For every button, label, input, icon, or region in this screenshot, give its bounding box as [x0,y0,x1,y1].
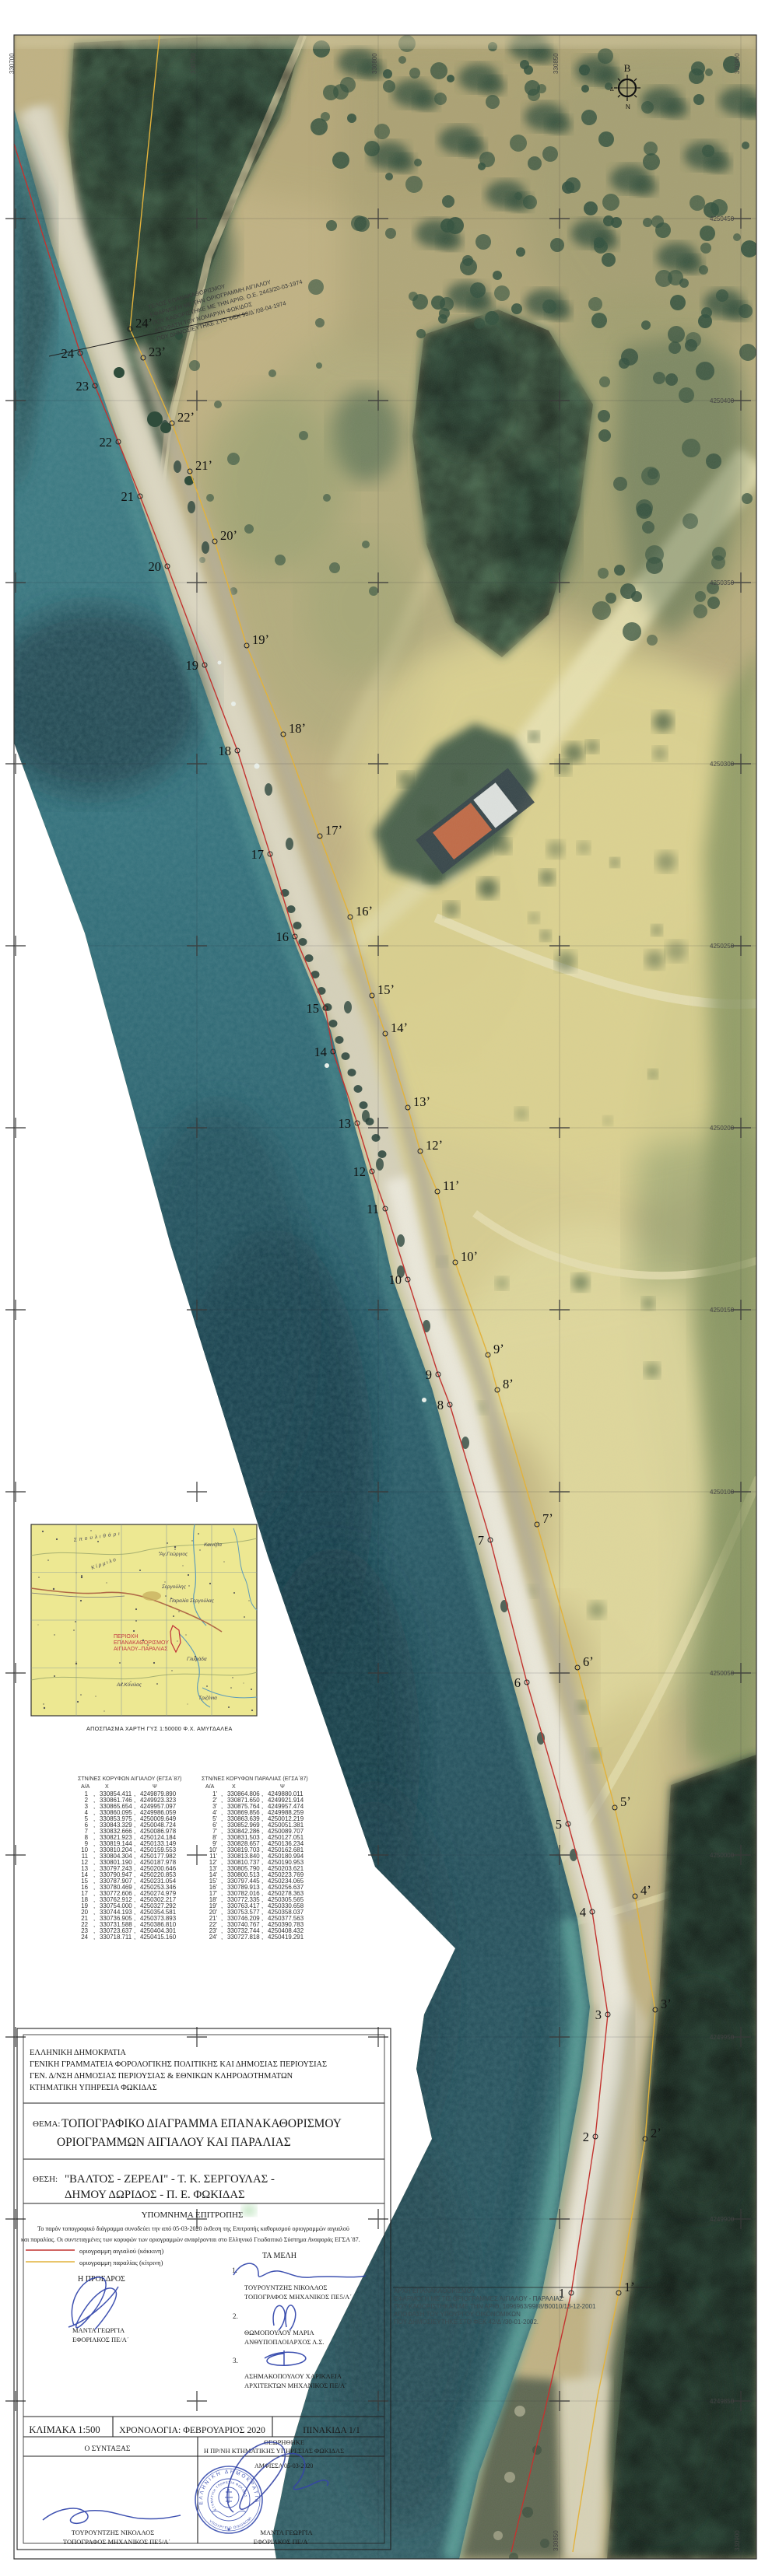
svg-text:οριογραμμη παραλίας (κίτρινη): οριογραμμη παραλίας (κίτρινη) [79,2259,163,2266]
svg-text:"ΒΑΛΤΟΣ - ΖΕΡΕΛΙ" - Τ. Κ. ΣΕΡ: "ΒΑΛΤΟΣ - ΖΕΡΕΛΙ" - Τ. Κ. ΣΕΡΓΟΥΛΑΣ - [65,2173,275,2186]
svg-text:Ψ: Ψ [153,1784,157,1790]
svg-text:Ν: Ν [626,103,630,110]
svg-text:19ʼ: 19ʼ [252,632,269,647]
svg-text:και παραλίας. Οι συντεταγμένες: και παραλίας. Οι συντεταγμένες των κορυφ… [21,2236,360,2243]
svg-text:330750: 330750 [190,53,197,74]
svg-text:Αγ.Γεώργιος: Αγ.Γεώργιος [159,1551,188,1557]
svg-text:4249850: 4249850 [710,2398,735,2405]
svg-text:ΕΦΟΡΙΑΚΟΣ ΠΕ/Α΄: ΕΦΟΡΙΑΚΟΣ ΠΕ/Α΄ [72,2336,129,2343]
svg-text:Το παρόν τοπογραφικό διάγραμμα: Το παρόν τοπογραφικό διάγραμμα συνοδεύει… [37,2225,349,2232]
svg-text:6: 6 [514,1675,521,1690]
svg-text:ΣΤΝ/ΝΕΣ ΚΟΡΥΦΩΝ ΑΙΓΙΑΛΟΥ (ΕΓΣΑ: ΣΤΝ/ΝΕΣ ΚΟΡΥΦΩΝ ΑΙΓΙΑΛΟΥ (ΕΓΣΑ΄87) [78,1776,182,1782]
svg-text:8ʼ: 8ʼ [503,1377,514,1391]
svg-text:Β: Β [624,62,631,74]
svg-text:11ʼ: 11ʼ [443,1178,459,1193]
svg-text:οριογραμμη αιγιαλού (κόκκινη): οριογραμμη αιγιαλού (κόκκινη) [79,2247,163,2255]
svg-text:24: 24 [81,1934,88,1941]
svg-text:ΠΕΡΙΟΧΗ: ΠΕΡΙΟΧΗ [114,1634,139,1640]
svg-text:4250100: 4250100 [710,1489,735,1496]
svg-text:ΓΕΝ. Δ/ΝΣΗ ΔΗΜΟΣΙΑΣ ΠΕΡΙΟΥΣΙΑΣ: ΓΕΝ. Δ/ΝΣΗ ΔΗΜΟΣΙΑΣ ΠΕΡΙΟΥΣΙΑΣ & ΕΘΝΙΚΩΝ… [30,2072,293,2081]
svg-text:ΑΡΧΗ ΕΠΑΝΑΚΑΘΟΡΙΣΜΟΥ: ΑΡΧΗ ΕΠΑΝΑΚΑΘΟΡΙΣΜΟΥ [394,2287,476,2294]
svg-text:17: 17 [251,847,265,862]
svg-text:Ο ΣΥΝΤΑΞΑΣ: Ο ΣΥΝΤΑΞΑΣ [85,2445,131,2453]
svg-text:6ʼ: 6ʼ [583,1654,594,1669]
svg-text:12ʼ: 12ʼ [426,1138,443,1153]
svg-text:ΠΟΥ ΔΗΜΟΣΙΕΥΤΗΚΕ ΣΤΟ ΦΕΚ 42/Δ΄: ΠΟΥ ΔΗΜΟΣΙΕΥΤΗΚΕ ΣΤΟ ΦΕΚ 42/Δ΄/30-01-200… [394,2319,539,2326]
svg-text:13ʼ: 13ʼ [413,1094,430,1109]
svg-text:ΑΝΘΥΠΟΠΛΟΙΑΡΧΟΣ Λ.Σ.: ΑΝΘΥΠΟΠΛΟΙΑΡΧΟΣ Λ.Σ. [244,2338,324,2346]
svg-text:ΤΟΠΟΓΡΑΦΙΚΟ ΔΙΑΓΡΑΜΜΑ ΕΠΑΝΑΚΑΘ: ΤΟΠΟΓΡΑΦΙΚΟ ΔΙΑΓΡΑΜΜΑ ΕΠΑΝΑΚΑΘΟΡΙΣΜΟΥ [61,2117,342,2130]
svg-text:4249900: 4249900 [710,2216,735,2223]
svg-text:330727.818: 330727.818 [227,1934,260,1941]
svg-text:5: 5 [556,1817,562,1832]
svg-text:4250200: 4250200 [710,1125,735,1132]
svg-text:ΑΠΟΦΑΣΗ ΤΟΥ ΥΠΟΥΡΓΟΥ ΟΙΚΟΝΟΜΙΚ: ΑΠΟΦΑΣΗ ΤΟΥ ΥΠΟΥΡΓΟΥ ΟΙΚΟΝΟΜΙΚΩΝ [394,2311,521,2318]
svg-text:9ʼ: 9ʼ [493,1342,504,1356]
svg-text:Χ: Χ [232,1784,236,1790]
svg-text:ΜΑΝΤΑ ΓΕΩΡΓΙΑ: ΜΑΝΤΑ ΓΕΩΡΓΙΑ [260,2529,313,2536]
svg-text:ΧΡΟΝΟΛΟΓΙΑ: ΦΕΒΡΟΥΑΡΙΟΣ 2020: ΧΡΟΝΟΛΟΓΙΑ: ΦΕΒΡΟΥΑΡΙΟΣ 2020 [119,2424,265,2435]
svg-text:Α/Α: Α/Α [205,1784,215,1790]
svg-text:2: 2 [583,2130,589,2144]
svg-text:ΤΟΥΡΟΥΝΤΖΗΣ ΝΙΚΟΛΑΟΣ: ΤΟΥΡΟΥΝΤΖΗΣ ΝΙΚΟΛΑΟΣ [244,2284,328,2291]
svg-text:7ʼ: 7ʼ [542,1511,553,1526]
svg-text:24ʼ: 24ʼ [135,316,153,331]
svg-text:4ʼ: 4ʼ [640,1883,651,1898]
svg-text:4250300: 4250300 [710,761,735,768]
svg-text:ΔΗΜΟΥ ΔΩΡΙΔΟΣ - Π. Ε. ΦΩΚΙΔΑΣ: ΔΗΜΟΥ ΔΩΡΙΔΟΣ - Π. Ε. ΦΩΚΙΔΑΣ [65,2189,245,2201]
svg-text:17ʼ: 17ʼ [325,823,342,838]
svg-text:ΤΟΠΟΓΡΑΦΟΣ ΜΗΧΑΝΙΚΟΣ ΠΕ5/Α΄: ΤΟΠΟΓΡΑΦΟΣ ΜΗΧΑΝΙΚΟΣ ΠΕ5/Α΄ [244,2293,352,2301]
svg-text:330850: 330850 [553,53,560,74]
svg-text:4250415.160: 4250415.160 [140,1934,177,1941]
svg-text:22ʼ: 22ʼ [177,410,195,425]
svg-text:ΚΤΗΜΑΤΙΚΗ ΥΠΗΡΕΣΙΑ ΦΩΚΙΔΑΣ: ΚΤΗΜΑΤΙΚΗ ΥΠΗΡΕΣΙΑ ΦΩΚΙΔΑΣ [30,2084,157,2092]
svg-text:330900: 330900 [734,2530,741,2551]
svg-text:3ʼ: 3ʼ [661,1997,672,2011]
svg-text:18ʼ: 18ʼ [289,721,306,736]
svg-text:1ʼ: 1ʼ [624,2280,635,2294]
svg-text:13: 13 [339,1116,352,1131]
svg-text:ΚΛΙΜΑΚΑ 1:500: ΚΛΙΜΑΚΑ 1:500 [29,2424,100,2435]
svg-text:9: 9 [426,1367,432,1382]
svg-text:Χ: Χ [105,1784,109,1790]
svg-text:20: 20 [149,559,162,574]
svg-text:7: 7 [478,1533,484,1548]
svg-text:2ʼ: 2ʼ [651,2126,661,2140]
svg-text:ΓΕΝΙΚΗ ΓΡΑΜΜΑΤΕΙΑ ΦΟΡΟΛΟΓΙΚΗΣ: ΓΕΝΙΚΗ ΓΡΑΜΜΑΤΕΙΑ ΦΟΡΟΛΟΓΙΚΗΣ ΠΟΛΙΤΙΚΗΣ … [30,2060,327,2069]
svg-text:10ʼ: 10ʼ [461,1249,478,1264]
svg-text:ΠΟΥ ΚΑΘΟΡΙΣΤΗΚΑΝ ΜΕ ΤΗΝ ΑΡΙΘ.: ΠΟΥ ΚΑΘΟΡΙΣΤΗΚΑΝ ΜΕ ΤΗΝ ΑΡΙΘ. 1096963/99… [394,2303,596,2310]
svg-text:Ψ: Ψ [280,1784,285,1790]
svg-text:Γλυφάδα: Γλυφάδα [187,1656,207,1662]
svg-text:8: 8 [437,1398,444,1412]
svg-text:4250050: 4250050 [710,1670,735,1677]
svg-text:,: , [134,1934,135,1941]
svg-text:330718.711: 330718.711 [100,1934,132,1941]
svg-text:21: 21 [121,489,135,504]
svg-text:ΑΠΟΣΠΑΣΜΑ ΧΑΡΤΗ ΓΥΣ 1:50000: ΑΠΟΣΠΑΣΜΑ ΧΑΡΤΗ ΓΥΣ 1:50000 Φ.Χ. ΑΜΥΓΔΑΛ… [86,1725,233,1732]
svg-text:4250400: 4250400 [710,397,735,404]
svg-text:16: 16 [276,929,289,944]
svg-text:Η ΠΡΟΕΔΡΟΣ: Η ΠΡΟΕΔΡΟΣ [78,2275,125,2284]
svg-text:3: 3 [595,2007,602,2022]
svg-text:Δ: Δ [610,87,614,93]
svg-text:ΑΙΓΙΑΛΟΥ–ΠΑΡΑΛΙΑΣ: ΑΙΓΙΑΛΟΥ–ΠΑΡΑΛΙΑΣ [114,1647,168,1652]
svg-text:20ʼ: 20ʼ [220,528,237,543]
svg-text:Παραλία Σεργούλας: Παραλία Σεργούλας [170,1598,215,1604]
svg-text:18: 18 [219,744,232,758]
svg-text:23ʼ: 23ʼ [149,345,166,359]
svg-text:4: 4 [580,1905,586,1920]
svg-text:ΘΕΜΑ:: ΘΕΜΑ: [33,2119,60,2129]
svg-text:15ʼ: 15ʼ [377,982,395,997]
svg-text:ΕΦΟΡΙΑΚΟΣ ΠΕ/Α΄: ΕΦΟΡΙΑΚΟΣ ΠΕ/Α΄ [254,2538,311,2546]
svg-text:4249950: 4249950 [710,2034,735,2041]
svg-text:16ʼ: 16ʼ [356,904,373,919]
svg-text:10: 10 [389,1272,402,1287]
svg-text:19: 19 [186,658,199,673]
svg-text:14: 14 [314,1045,328,1059]
svg-text:4250350: 4250350 [710,579,735,586]
svg-text:4250450: 4250450 [710,215,735,222]
svg-text:Καινέβα: Καινέβα [204,1542,222,1548]
svg-text:4250150: 4250150 [710,1307,735,1314]
svg-text:330800: 330800 [371,53,378,74]
svg-text:14ʼ: 14ʼ [391,1020,408,1035]
svg-text:,: , [261,1934,263,1941]
svg-text:ΕΛΛΗΝΙΚΗ ΔΗΜΟΚΡΑΤΙΑ: ΕΛΛΗΝΙΚΗ ΔΗΜΟΚΡΑΤΙΑ [30,2049,126,2057]
svg-text:ΣΤΝ/ΝΕΣ ΚΟΡΥΦΩΝ ΠΑΡΑΛΙΑΣ (ΕΓΣΑ: ΣΤΝ/ΝΕΣ ΚΟΡΥΦΩΝ ΠΑΡΑΛΙΑΣ (ΕΓΣΑ΄87) [202,1776,308,1782]
svg-text:Η ΠΡ/ΝΗ ΚΤΗΜΑΤΙΚΗΣ ΥΠΗΡΕΣΙΑΣ Φ: Η ΠΡ/ΝΗ ΚΤΗΜΑΤΙΚΗΣ ΥΠΗΡΕΣΙΑΣ ΦΩΚΙΔΑΣ [204,2447,344,2455]
svg-text:15: 15 [307,1001,320,1016]
svg-text:5ʼ: 5ʼ [620,1794,631,1809]
svg-text:11: 11 [367,1202,379,1216]
svg-text:3.: 3. [233,2357,238,2364]
svg-text:330900: 330900 [734,53,741,74]
svg-text:ΑΡΧΙΤΕΚΤΩΝ ΜΗΧΑΝΙΚΟΣ ΠΕ/Α΄: ΑΡΧΙΤΕΚΤΩΝ ΜΗΧΑΝΙΚΟΣ ΠΕ/Α΄ [244,2382,347,2389]
svg-text:2.: 2. [233,2312,238,2320]
svg-text:Τριζόνια: Τριζόνια [198,1695,217,1701]
svg-text:,: , [221,1934,223,1941]
svg-text:ΘΕΣΗ:: ΘΕΣΗ: [33,2175,58,2184]
svg-text:,: , [93,1934,95,1941]
svg-text:ΤΟΠΟΓΡΑΦΟΣ ΜΗΧΑΝΙΚΟΣ ΠΕ5/Α΄: ΤΟΠΟΓΡΑΦΟΣ ΜΗΧΑΝΙΚΟΣ ΠΕ5/Α΄ [63,2538,170,2546]
svg-text:ΑΣΗΜΑΚΟΠΟΥΛΟΥ ΧΑΡΙΚΛΕΙΑ: ΑΣΗΜΑΚΟΠΟΥΛΟΥ ΧΑΡΙΚΛΕΙΑ [244,2372,342,2380]
svg-text:Α/Α: Α/Α [81,1784,90,1790]
svg-text:23: 23 [76,379,89,394]
svg-text:4250000: 4250000 [710,1852,735,1859]
svg-text:21ʼ: 21ʼ [195,458,212,473]
svg-text:330850: 330850 [553,2530,560,2551]
svg-text:12: 12 [353,1164,367,1179]
svg-text:Σεργούλης: Σεργούλης [161,1584,187,1590]
svg-text:ΤΟΥΡΟΥΝΤΖΗΣ ΝΙΚΟΛΑΟΣ: ΤΟΥΡΟΥΝΤΖΗΣ ΝΙΚΟΛΑΟΣ [72,2529,155,2536]
svg-text:330700: 330700 [9,53,16,74]
svg-text:ΤΑ ΜΕΛΗ: ΤΑ ΜΕΛΗ [262,2252,297,2260]
svg-text:ΕΦΑΡΜΟΓΗ ΜΕ ΤΙΣ ΟΡΙΟΓΡΑΜΜΕΣ ΑΙ: ΕΦΑΡΜΟΓΗ ΜΕ ΤΙΣ ΟΡΙΟΓΡΑΜΜΕΣ ΑΙΓΙΑΛΟΥ - Π… [394,2295,563,2302]
svg-text:ΥΠΟΜΝΗΜΑ ΕΠΙΤΡΟΠΗΣ: ΥΠΟΜΝΗΜΑ ΕΠΙΤΡΟΠΗΣ [142,2210,244,2220]
svg-text:ΜΑΝΤΑ ΓΕΩΡΓΙΑ: ΜΑΝΤΑ ΓΕΩΡΓΙΑ [72,2326,125,2334]
svg-text:Ακ.Κόνιλας: Ακ.Κόνιλας [116,1682,142,1688]
svg-text:22: 22 [100,435,113,450]
svg-text:24': 24' [209,1934,218,1941]
svg-text:ΕΠΑΝΑΚΑΘΟΡΙΣΜΟΥ: ΕΠΑΝΑΚΑΘΟΡΙΣΜΟΥ [114,1640,169,1646]
svg-text:ΠΙΝΑΚΙΔΑ 1/1: ΠΙΝΑΚΙΔΑ 1/1 [303,2426,360,2435]
svg-text:4250419.291: 4250419.291 [268,1934,304,1941]
svg-text:4250250: 4250250 [710,943,735,950]
svg-text:ΟΡΙΟΓΡΑΜΜΩΝ ΑΙΓΙΑΛΟΥ ΚΑΙ ΠΑΡΑΛ: ΟΡΙΟΓΡΑΜΜΩΝ ΑΙΓΙΑΛΟΥ ΚΑΙ ΠΑΡΑΛΙΑΣ [57,2136,291,2149]
